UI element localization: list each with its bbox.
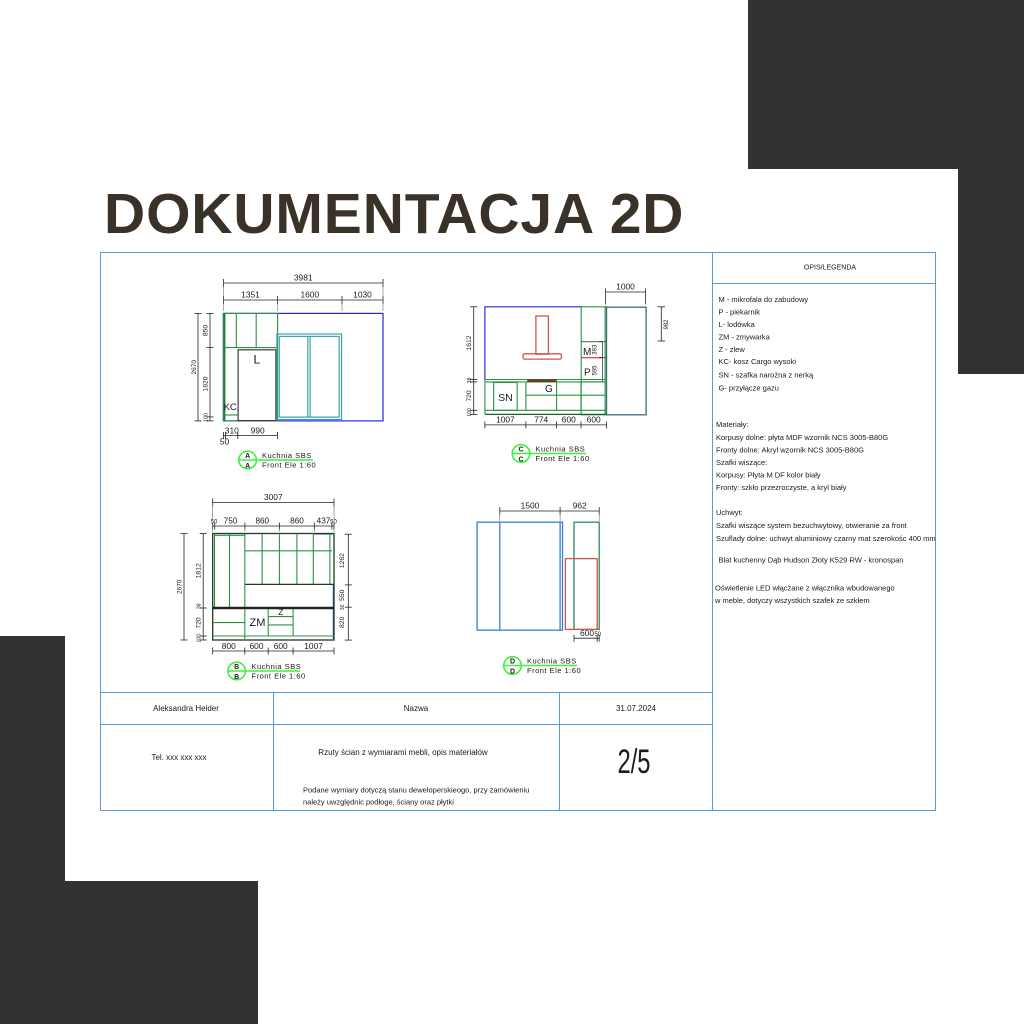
svg-text:Tel. xxx xxx xxx: Tel. xxx xxx xxx	[151, 753, 206, 762]
svg-text:800: 800	[222, 641, 236, 651]
svg-text:D: D	[510, 659, 515, 666]
svg-text:100: 100	[197, 634, 203, 643]
svg-text:ZM - zmywarka: ZM - zmywarka	[719, 333, 771, 342]
svg-text:982: 982	[664, 319, 670, 330]
svg-text:720: 720	[196, 617, 203, 629]
svg-text:1500: 1500	[521, 501, 540, 511]
svg-text:SN - szafka narożna z nerką: SN - szafka narożna z nerką	[719, 371, 814, 380]
svg-text:Kuchnia SBS: Kuchnia SBS	[252, 662, 302, 671]
svg-text:Rzuty ścian z wymiarami mebli,: Rzuty ścian z wymiarami mebli, opis mate…	[318, 748, 488, 757]
svg-text:SN: SN	[498, 392, 513, 404]
svg-text:B: B	[234, 674, 239, 681]
svg-text:720: 720	[466, 390, 473, 402]
svg-text:1351: 1351	[241, 290, 260, 300]
svg-text:L: L	[254, 352, 261, 366]
svg-text:Aleksandra Heider: Aleksandra Heider	[153, 704, 219, 713]
svg-text:P - piekarnik: P - piekarnik	[719, 308, 761, 317]
svg-text:KC- kosz Cargo wysoki: KC- kosz Cargo wysoki	[719, 357, 797, 366]
svg-text:310: 310	[225, 426, 239, 436]
svg-text:1030: 1030	[353, 290, 372, 300]
svg-text:38: 38	[467, 378, 473, 384]
svg-text:100: 100	[204, 413, 210, 422]
svg-text:50: 50	[220, 437, 230, 447]
svg-text:2670: 2670	[176, 579, 183, 594]
svg-text:G: G	[545, 384, 553, 395]
svg-text:Front Ele 1:60: Front Ele 1:60	[252, 672, 306, 681]
svg-text:600: 600	[562, 415, 576, 425]
svg-text:Z: Z	[278, 607, 283, 617]
svg-text:393: 393	[592, 344, 598, 355]
svg-text:50: 50	[330, 520, 337, 526]
svg-text:należy uwzględnic podłoge, ści: należy uwzględnic podłoge, ściany oraz p…	[303, 798, 454, 807]
svg-text:38: 38	[197, 603, 203, 609]
svg-text:850: 850	[203, 325, 210, 337]
svg-text:w meble, dotyczy wszystkich sz: w meble, dotyczy wszystkich szafek ze sz…	[714, 596, 870, 605]
svg-text:2670: 2670	[191, 360, 198, 375]
svg-text:Szuflady dolne: uchwyt alumini: Szuflady dolne: uchwyt aluminiowy czarny…	[716, 534, 936, 543]
svg-text:Kuchnia SBS: Kuchnia SBS	[536, 444, 586, 453]
svg-text:774: 774	[534, 415, 548, 425]
svg-text:31.07.2024: 31.07.2024	[616, 704, 657, 713]
svg-text:Kuchnia SBS: Kuchnia SBS	[527, 656, 577, 665]
svg-text:L- lodówka: L- lodówka	[719, 320, 756, 329]
svg-text:Front Ele 1:60: Front Ele 1:60	[262, 461, 316, 470]
svg-text:2/5: 2/5	[618, 743, 651, 781]
svg-text:Szafki wiszące:: Szafki wiszące:	[716, 458, 767, 467]
svg-text:3007: 3007	[264, 492, 283, 502]
svg-text:D: D	[510, 669, 515, 676]
svg-text:M: M	[583, 347, 591, 358]
svg-text:ZM: ZM	[250, 617, 266, 629]
svg-text:C: C	[518, 447, 523, 454]
svg-text:M - mikrofala do zabudowy: M - mikrofala do zabudowy	[719, 295, 809, 304]
svg-text:Nazwa: Nazwa	[404, 704, 429, 713]
svg-text:1600: 1600	[300, 290, 319, 300]
svg-text:860: 860	[255, 517, 269, 526]
svg-text:Front Ele 1:60: Front Ele 1:60	[527, 666, 581, 675]
svg-text:Oświetlenie LED włączane z wł: Oświetlenie LED włączane z włącznika wbu…	[715, 584, 895, 593]
svg-text:Korpusy: Płyta M DF kolor biał: Korpusy: Płyta M DF kolor biały	[716, 471, 821, 480]
svg-text:Front Ele 1:60: Front Ele 1:60	[536, 454, 590, 463]
svg-text:A: A	[245, 463, 250, 470]
svg-text:860: 860	[290, 517, 304, 526]
svg-text:1820: 1820	[203, 376, 210, 391]
svg-text:750: 750	[224, 517, 238, 526]
svg-text:50: 50	[211, 520, 218, 526]
svg-text:OPIS/LEGENDA: OPIS/LEGENDA	[804, 265, 856, 272]
svg-text:Materiały:: Materiały:	[716, 420, 749, 429]
svg-text:Kuchnia SBS: Kuchnia SBS	[262, 451, 312, 460]
svg-text:B: B	[234, 664, 239, 671]
svg-text:1812: 1812	[196, 563, 203, 578]
svg-text:3981: 3981	[294, 273, 313, 283]
svg-text:1612: 1612	[466, 335, 473, 350]
svg-text:A: A	[245, 453, 250, 460]
svg-text:600: 600	[587, 415, 601, 425]
svg-text:1007: 1007	[304, 641, 323, 651]
svg-text:G- przyłącze gazu: G- przyłącze gazu	[719, 384, 779, 393]
svg-text:550: 550	[339, 589, 346, 601]
svg-text:600: 600	[274, 641, 288, 651]
svg-text:600: 600	[580, 628, 594, 638]
svg-text:100: 100	[467, 408, 473, 417]
svg-text:50: 50	[594, 632, 601, 638]
svg-text:595: 595	[592, 365, 598, 376]
svg-text:990: 990	[251, 426, 265, 436]
svg-text:820: 820	[339, 616, 346, 628]
svg-text:30: 30	[340, 604, 346, 610]
svg-text:Szafki wiszące system bezuchw: Szafki wiszące system bezuchwytowy, otwi…	[716, 521, 908, 530]
svg-text:Z - zlew: Z - zlew	[719, 345, 746, 354]
svg-text:600: 600	[250, 641, 264, 651]
svg-text:KC: KC	[224, 402, 237, 413]
svg-text:Podane wymiary dotyczą stanu: Podane wymiary dotyczą stanu dewelopersk…	[303, 786, 529, 795]
svg-text:1262: 1262	[339, 553, 346, 568]
svg-text:Korpusy dolne: płyta MDF wzorn: Korpusy dolne: płyta MDF wzornik NCS 300…	[716, 433, 888, 442]
svg-text:P: P	[584, 368, 591, 379]
svg-text:962: 962	[573, 501, 587, 511]
svg-text:Uchwyt:: Uchwyt:	[716, 508, 743, 517]
svg-text:1000: 1000	[616, 282, 635, 292]
svg-text:1007: 1007	[496, 415, 515, 425]
svg-text:Blat kuchenny Dąb Hudson Złot: Blat kuchenny Dąb Hudson Złoty K529 RW -…	[719, 556, 904, 565]
svg-text:C: C	[518, 457, 523, 464]
svg-text:437: 437	[317, 517, 331, 526]
svg-text:Fronty dolne: Akryl wzornik NC: Fronty dolne: Akryl wzornik NCS 3005-B80…	[716, 446, 864, 455]
svg-text:Fronty: szkło przezroczyste, a: Fronty: szkło przezroczyste, a kryl biał…	[716, 483, 847, 492]
